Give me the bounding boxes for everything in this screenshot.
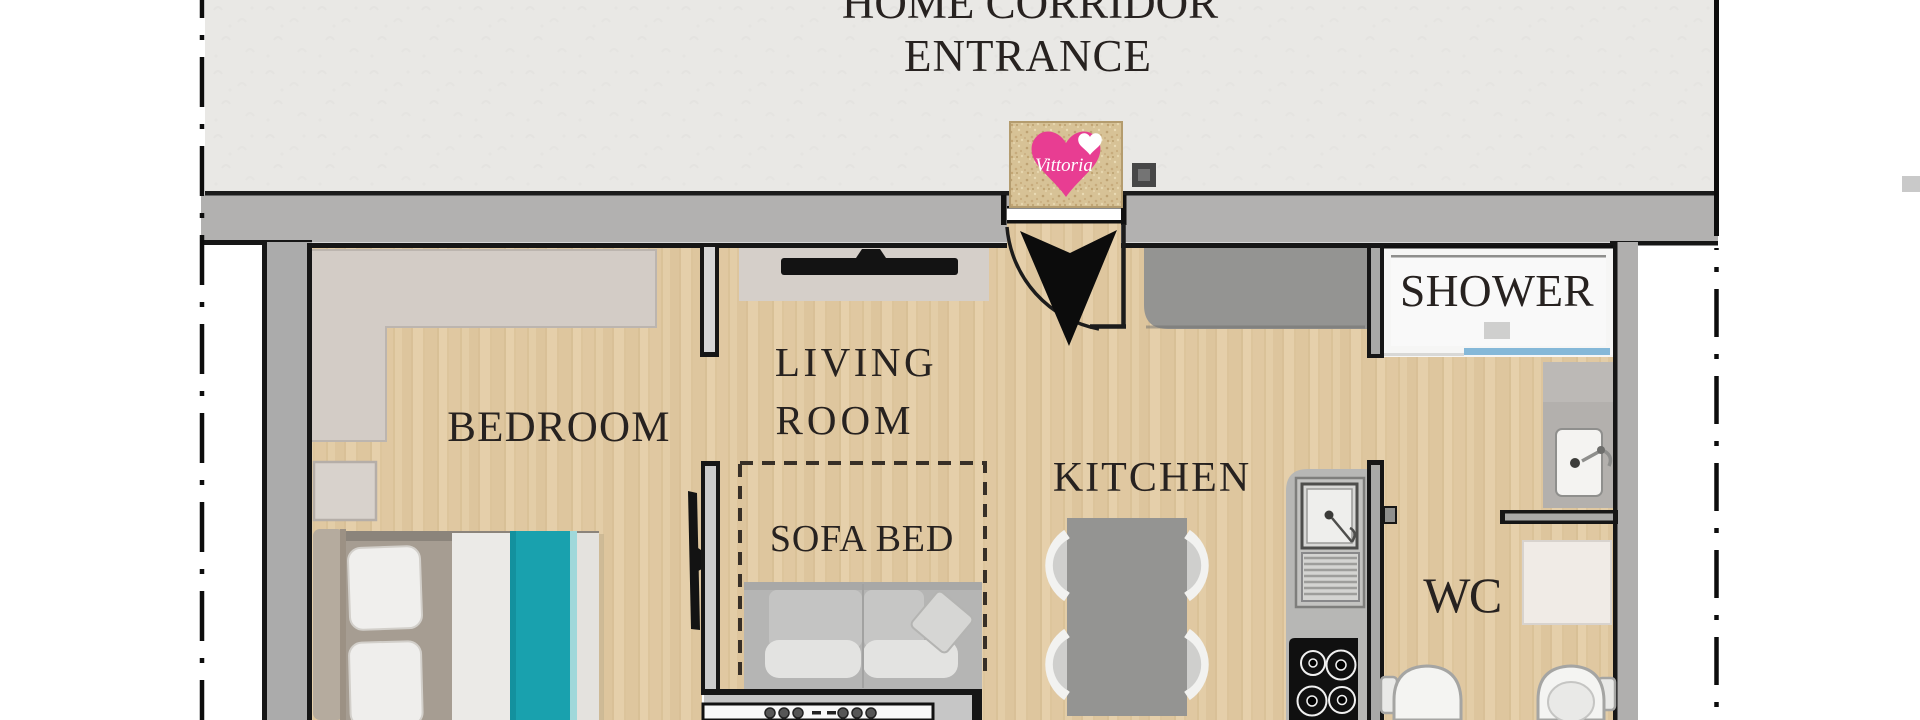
svg-text:LIVING: LIVING (775, 339, 937, 385)
svg-text:HOME CORRIDOR: HOME CORRIDOR (842, 0, 1218, 28)
svg-text:ROOM: ROOM (775, 397, 914, 443)
svg-text:Vittoria: Vittoria (1035, 155, 1093, 176)
svg-text:SOFA BED: SOFA BED (770, 518, 954, 560)
svg-text:SHOWER: SHOWER (1400, 265, 1594, 316)
svg-text:WC: WC (1423, 567, 1501, 623)
svg-text:ENTRANCE: ENTRANCE (904, 31, 1152, 81)
svg-text:BEDROOM: BEDROOM (447, 404, 670, 451)
svg-text:KITCHEN: KITCHEN (1053, 455, 1251, 501)
